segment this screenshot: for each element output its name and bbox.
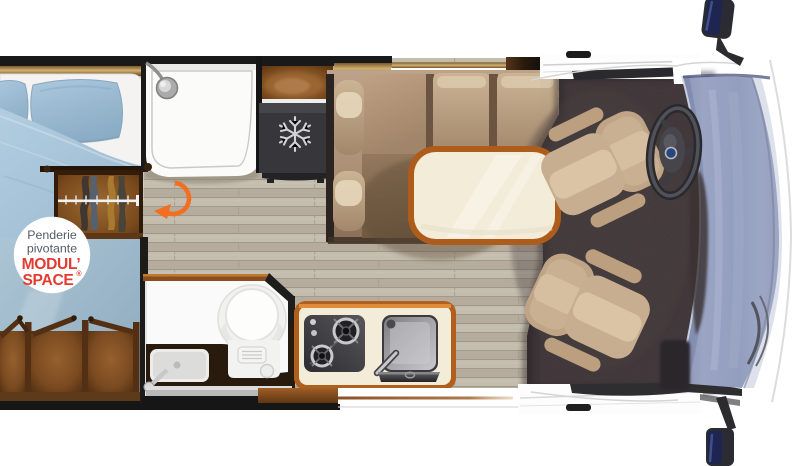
svg-text:Penderie: Penderie: [27, 228, 77, 242]
svg-text:SPACE: SPACE: [22, 272, 73, 289]
svg-text:MODUL’: MODUL’: [22, 256, 81, 273]
svg-text:pivotante: pivotante: [27, 242, 77, 256]
svg-text:®: ®: [76, 270, 82, 278]
